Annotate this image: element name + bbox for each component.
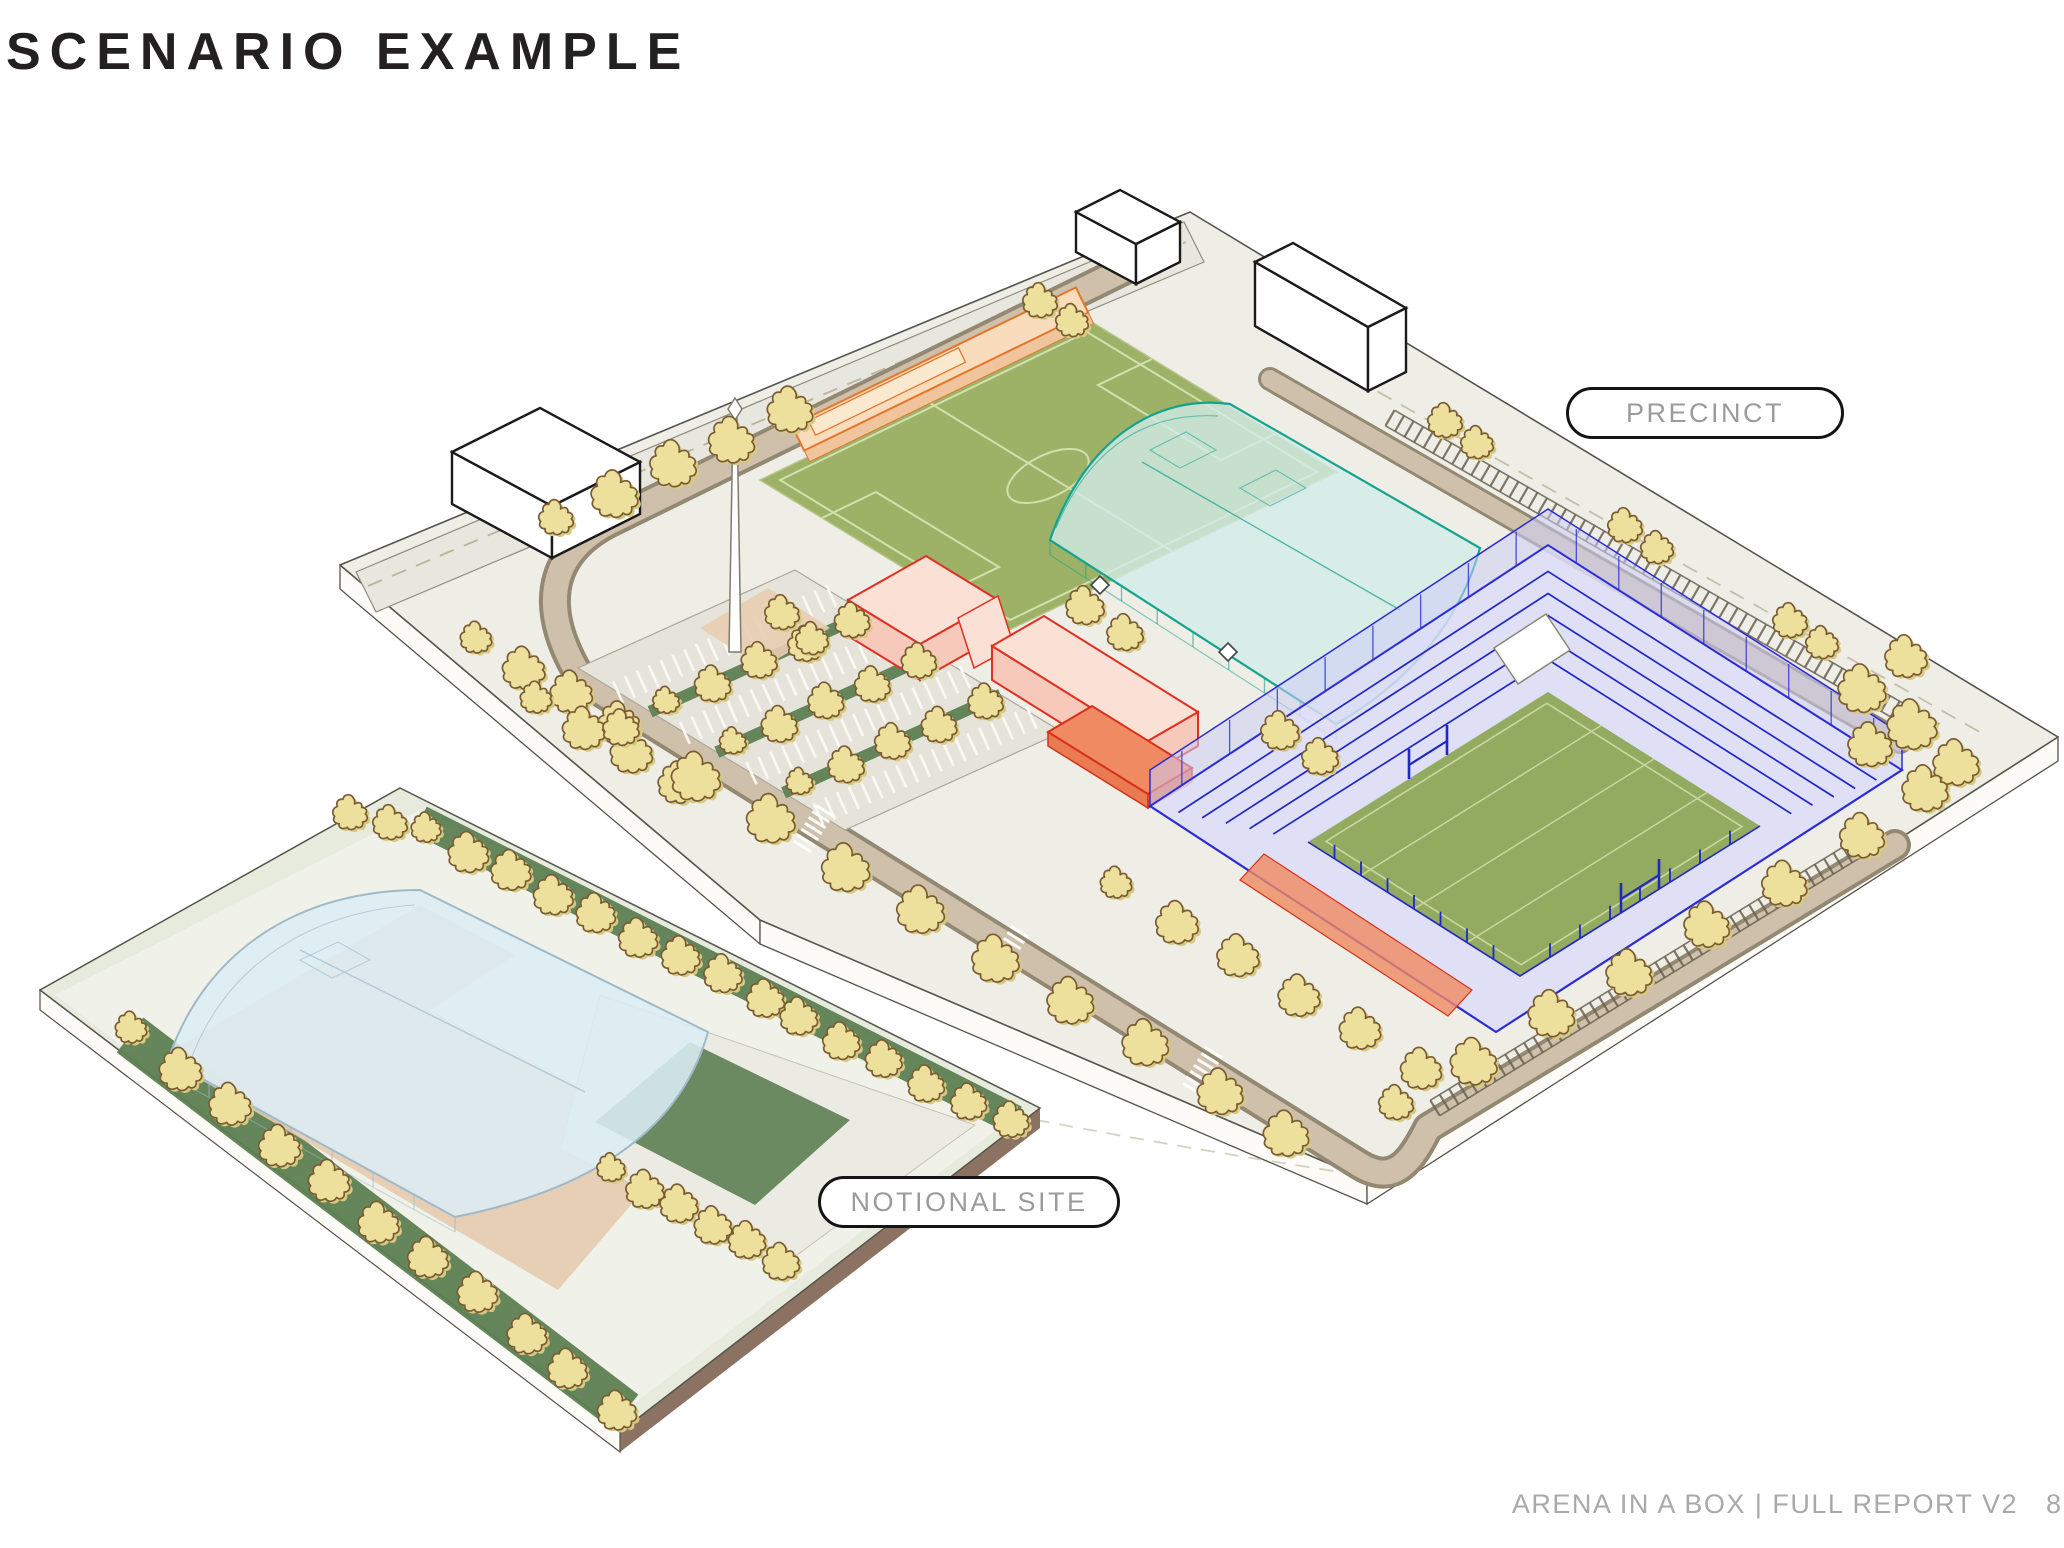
page-title: SCENARIO EXAMPLE — [6, 22, 690, 82]
precinct-label: PRECINCT — [1566, 387, 1844, 439]
notional-site-label: NOTIONAL SITE — [818, 1176, 1120, 1228]
report-slide: SCENARIO EXAMPLE PRECINCT NOTIONAL SITE … — [0, 0, 2064, 1548]
precinct-label-text: PRECINCT — [1626, 398, 1784, 429]
site-illustration — [0, 0, 2064, 1548]
page-number: 8 — [2046, 1489, 2061, 1520]
footer-text: ARENA IN A BOX | FULL REPORT V2 — [1512, 1489, 2018, 1520]
notional-site-label-text: NOTIONAL SITE — [850, 1187, 1087, 1218]
